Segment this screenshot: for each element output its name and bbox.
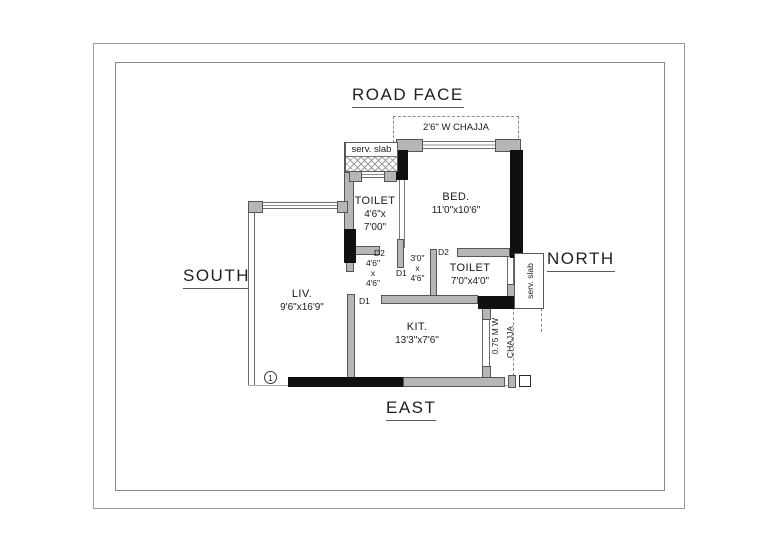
serv-slab-top: serv. slab — [345, 142, 398, 172]
door-d2-toilet2: D2 — [438, 247, 449, 257]
room-toilet2: TOILET 7'0"x4'0" — [431, 261, 509, 288]
wall-east-gray-segment — [403, 377, 505, 387]
wall-east-end-cap — [519, 375, 531, 387]
label-road-face: ROAD FACE — [352, 85, 464, 108]
passage1-height: 4'6" — [355, 278, 391, 288]
room-kitchen-name: KIT. — [375, 320, 459, 334]
room-toilet2-name: TOILET — [431, 261, 509, 275]
passage1-x: x — [355, 268, 391, 278]
wall-toilet2-north — [457, 248, 510, 257]
door-d1-living: D1 — [359, 296, 370, 306]
room-toilet1-dim2: 7'00" — [343, 221, 407, 234]
wall-east-black-segment — [288, 377, 403, 387]
room-living-name: LIV. — [260, 287, 344, 301]
label-north: NORTH — [547, 249, 615, 272]
room-toilet2-dims: 7'0"x4'0" — [431, 275, 509, 288]
serv-slab-right-label: serv. slab — [525, 263, 535, 299]
room-living-dims: 9'6"x16'9" — [260, 301, 344, 314]
serv-slab-top-hatch — [346, 157, 397, 171]
room-bed-name: BED. — [413, 190, 499, 204]
chajja-side-label-1: 0.75 M W — [490, 318, 500, 354]
passage2-width: 3'0" — [401, 253, 434, 263]
passage1-width: 4'6" — [355, 258, 391, 268]
room-bed-dims: 11'0"x10'6" — [413, 204, 499, 217]
room-kitchen-dims: 13'3"x7'6" — [375, 334, 459, 347]
serv-slab-dashed-line — [541, 308, 542, 332]
room-living: LIV. 9'6"x16'9" — [260, 287, 344, 314]
window-living-north — [251, 202, 347, 209]
label-east: EAST — [386, 398, 436, 421]
chajja-side-label-2: CHAJJA — [505, 326, 515, 358]
door-d2-toilet1: D2 — [374, 248, 385, 258]
floor-plan-page: ROAD FACE SOUTH NORTH EAST 2'6" W CHAJJA — [0, 0, 764, 541]
room-toilet1-dim1: 4'6"x — [343, 208, 407, 221]
passage1-dims: 4'6" x 4'6" — [355, 258, 391, 288]
room-bed: BED. 11'0"x10'6" — [413, 190, 499, 217]
door-d1-passage: D1 — [396, 268, 407, 278]
wall-living-kitchen-divider — [347, 294, 355, 378]
room-toilet1: TOILET 4'6"x 7'00" — [343, 194, 407, 234]
label-south: SOUTH — [183, 266, 250, 289]
point-marker-1: 1 — [264, 371, 277, 384]
wall-bed-east-black — [510, 150, 523, 258]
room-kitchen: KIT. 13'3"x7'6" — [375, 320, 459, 347]
wall-living-top-left-post — [248, 201, 263, 213]
chajja-top-label: 2'6" W CHAJJA — [394, 117, 518, 134]
wall-kitchen-north — [381, 295, 478, 304]
window-bed-north — [421, 141, 496, 149]
wall-east-end-piece — [508, 375, 516, 388]
window-kitchen-east — [482, 319, 490, 367]
room-toilet1-name: TOILET — [343, 194, 407, 208]
serv-slab-top-label: serv. slab — [346, 143, 397, 157]
window-living-west — [248, 202, 255, 385]
